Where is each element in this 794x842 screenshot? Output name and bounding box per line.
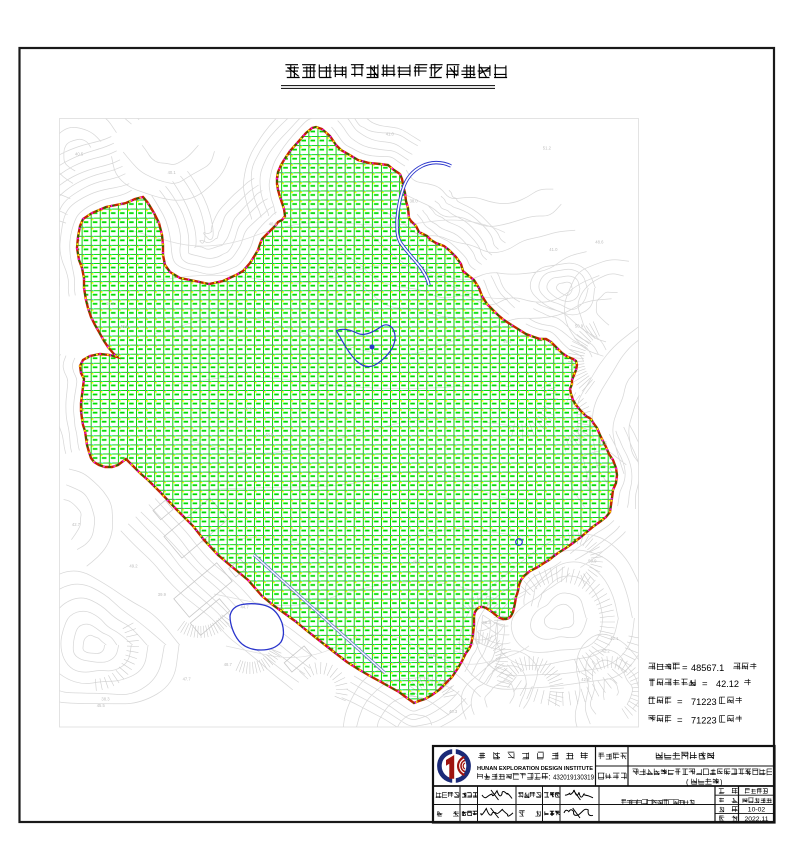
svg-text:44.7: 44.7 — [241, 605, 250, 610]
svg-text:=: = — [682, 663, 688, 674]
svg-text:51.2: 51.2 — [543, 146, 552, 151]
svg-text:46.4: 46.4 — [106, 301, 115, 306]
svg-text:71223: 71223 — [691, 716, 717, 726]
svg-text:=: = — [677, 715, 683, 726]
svg-text:47.7: 47.7 — [183, 676, 192, 681]
svg-text:48567.1: 48567.1 — [691, 663, 724, 673]
svg-text:40.0: 40.0 — [269, 221, 278, 226]
svg-text:40.3: 40.3 — [449, 709, 458, 714]
svg-text:42.12: 42.12 — [716, 679, 739, 689]
svg-text:38.3: 38.3 — [482, 620, 491, 625]
svg-text:71223: 71223 — [691, 697, 717, 707]
svg-text:49.2: 49.2 — [129, 563, 138, 568]
svg-text:=: = — [702, 679, 708, 690]
svg-text:47.9: 47.9 — [244, 407, 253, 412]
svg-text:45.5: 45.5 — [97, 703, 106, 708]
svg-text:47.5: 47.5 — [599, 441, 608, 446]
svg-text:38.3: 38.3 — [101, 696, 110, 701]
svg-text:10-02: 10-02 — [748, 807, 766, 814]
svg-text:40.5: 40.5 — [75, 151, 84, 156]
svg-text:=: = — [677, 697, 683, 708]
svg-text:48.6: 48.6 — [595, 239, 604, 244]
svg-text:45.6: 45.6 — [328, 269, 337, 274]
svg-text:39.6: 39.6 — [427, 653, 436, 658]
svg-text:46.1: 46.1 — [503, 339, 512, 344]
svg-text:38.0: 38.0 — [410, 198, 419, 203]
svg-text:48.9: 48.9 — [265, 432, 274, 437]
svg-text:50.9: 50.9 — [575, 324, 584, 329]
svg-text:39.9: 39.9 — [158, 592, 167, 597]
svg-text:50.9: 50.9 — [588, 558, 597, 563]
svg-text:42.2: 42.2 — [602, 649, 611, 654]
svg-text:46.6: 46.6 — [120, 324, 129, 329]
svg-text:41.0: 41.0 — [386, 132, 395, 137]
svg-text:42.7: 42.7 — [72, 522, 81, 527]
svg-text::: : — [549, 772, 551, 781]
svg-text:2022.11: 2022.11 — [744, 816, 768, 823]
svg-text:41.0: 41.0 — [549, 247, 558, 252]
svg-text:42.8: 42.8 — [581, 677, 590, 682]
svg-text:48.7: 48.7 — [224, 662, 233, 667]
svg-text:42.1: 42.1 — [610, 636, 619, 641]
svg-text:432019130319: 432019130319 — [553, 773, 594, 782]
svg-text:40.1: 40.1 — [168, 170, 177, 175]
svg-text:49.1: 49.1 — [413, 559, 422, 564]
svg-text:51.2: 51.2 — [86, 397, 95, 402]
svg-text:HUNAN EXPLORATION DESIGN INSTI: HUNAN EXPLORATION DESIGN INSTITUTE — [477, 766, 593, 772]
svg-text:42.4: 42.4 — [370, 307, 379, 312]
